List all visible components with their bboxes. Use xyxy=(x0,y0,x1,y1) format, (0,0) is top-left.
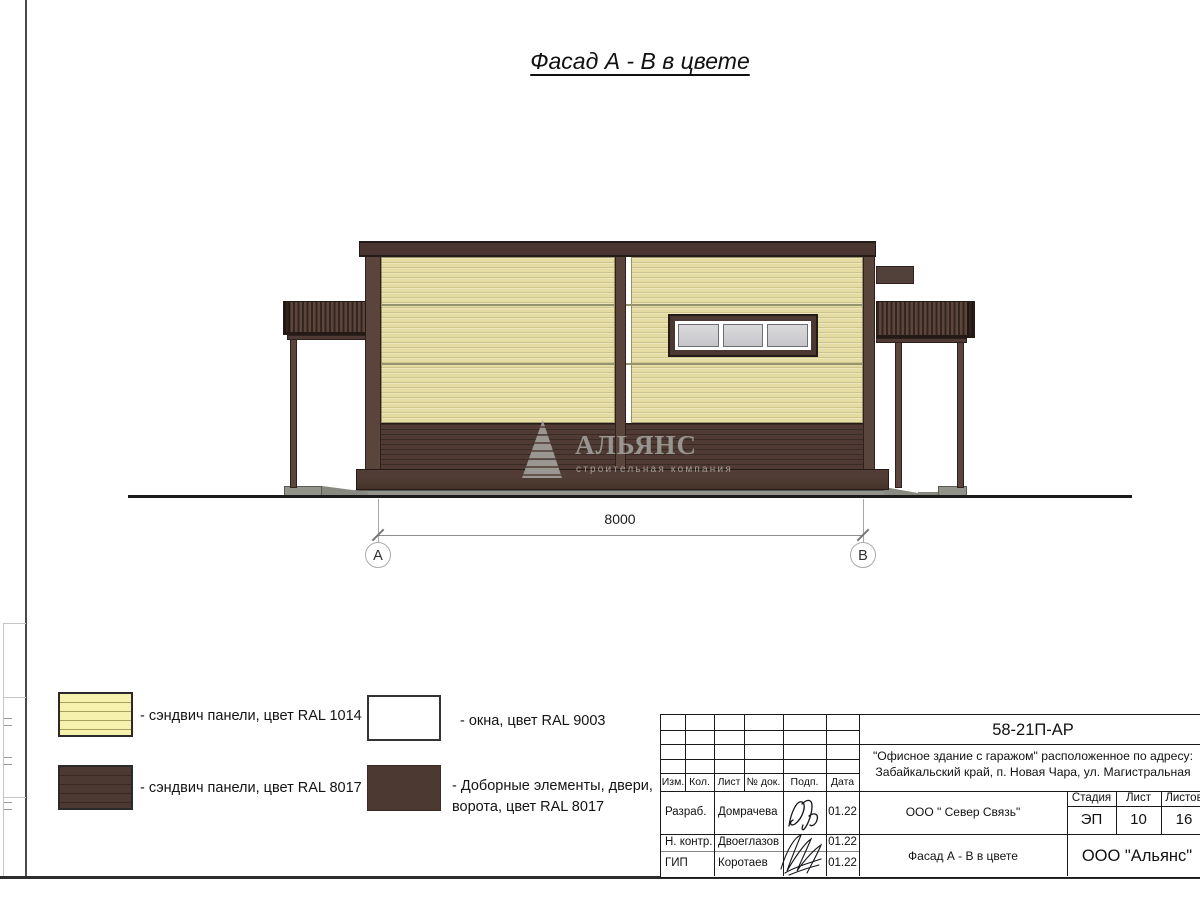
grid-line xyxy=(661,759,859,760)
tb-col-dok: № док. xyxy=(744,773,783,791)
tb-col-data: Дата xyxy=(826,773,859,791)
dimension-label: 8000 xyxy=(520,511,720,527)
tb-sheet-value: 10 xyxy=(1116,806,1161,834)
drawing-sheet: Фасад А - В в цвете xyxy=(0,0,1200,900)
extension-line-b xyxy=(863,499,864,543)
legend-label: - сэндвич панели, цвет RAL 8017 xyxy=(140,778,362,799)
tb-client: ООО " Север Связь" xyxy=(859,791,1067,834)
legend-swatch-ral8017 xyxy=(58,765,133,810)
grid-line xyxy=(714,715,715,876)
grid-line xyxy=(661,744,1200,745)
tb-role: Н. контр. xyxy=(665,834,712,851)
legend-label: - сэндвич панели, цвет RAL 1014 xyxy=(140,706,362,727)
tb-name: Двоеглазов xyxy=(718,834,779,851)
tb-project-line1: "Офисное здание с гаражом" расположенное… xyxy=(859,748,1200,764)
tb-role: Разраб. xyxy=(665,791,706,834)
tb-sheet-label: Лист xyxy=(1116,791,1161,806)
tb-sheets-value: 16 xyxy=(1161,806,1200,834)
title-block: Изм. Кол. Лист № док. Подп. Дата Разраб.… xyxy=(660,714,1200,878)
legend: - сэндвич панели, цвет RAL 1014 - сэндви… xyxy=(0,680,660,840)
tb-drawing-title: Фасад А - В в цвете xyxy=(859,834,1067,879)
tb-stage-label: Стадия xyxy=(1067,791,1116,806)
tb-company: ООО "Альянс" xyxy=(1067,834,1200,879)
legend-label: - окна, цвет RAL 9003 xyxy=(460,711,605,732)
axis-marker-a: А xyxy=(365,542,391,568)
tb-date: 01.22 xyxy=(826,834,859,851)
grid-line xyxy=(661,730,859,731)
legend-swatch-doborka xyxy=(367,765,441,811)
tb-col-kol: Кол. xyxy=(685,773,714,791)
tb-col-list: Лист xyxy=(714,773,744,791)
legend-label: - Доборные элементы, двери, ворота, цвет… xyxy=(452,776,664,818)
tb-name: Домрачева xyxy=(718,791,778,834)
signature-gip-icon xyxy=(775,829,827,877)
legend-swatch-ral9003 xyxy=(367,695,441,741)
tb-sheets-label: Листов xyxy=(1161,791,1200,806)
axis-marker-b: В xyxy=(850,542,876,568)
tb-col-izm: Изм. xyxy=(661,773,685,791)
tb-doc-number: 58-21П-АР xyxy=(859,717,1200,743)
tb-name: Коротаев xyxy=(718,852,768,874)
dimension-line xyxy=(378,535,863,536)
legend-swatch-ral1014 xyxy=(58,692,133,737)
tb-date: 01.22 xyxy=(826,852,859,874)
tb-project-line2: Забайкальский край, п. Новая Чара, ул. М… xyxy=(859,764,1200,780)
tb-stage-value: ЭП xyxy=(1067,806,1116,834)
extension-line-a xyxy=(378,499,379,543)
tb-role: ГИП xyxy=(665,852,688,874)
tb-col-podp: Подп. xyxy=(783,773,826,791)
tb-date: 01.22 xyxy=(826,791,859,834)
